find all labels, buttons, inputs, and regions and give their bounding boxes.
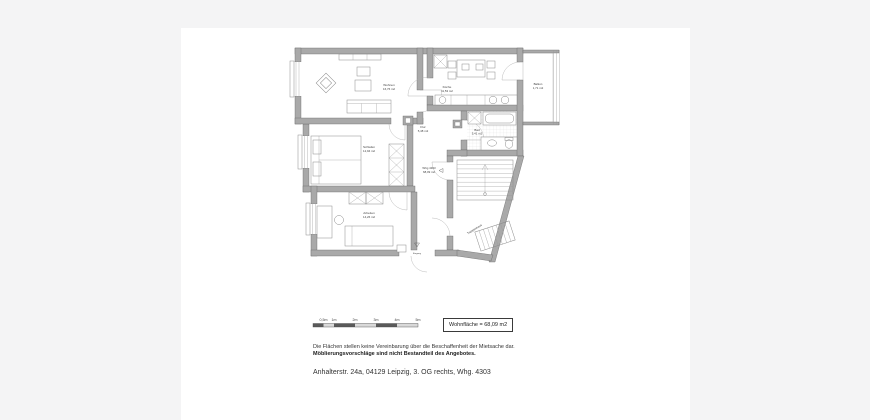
desk (317, 206, 332, 238)
room-label-schlafen: Schlafen 12,94 m2 (363, 145, 375, 153)
living-area-text: Wohnfläche = 68,09 m2 (449, 322, 507, 328)
svg-text:68,09 m2: 68,09 m2 (423, 170, 435, 174)
coffee-table (355, 80, 371, 91)
svg-text:5,41 m2: 5,41 m2 (472, 132, 483, 136)
bath-counter (481, 137, 517, 150)
tv-table (357, 67, 370, 76)
single-bed (345, 226, 393, 246)
staircase-label: Treppenhaus (466, 223, 483, 236)
work-wardrobe (349, 192, 383, 204)
windows (290, 61, 318, 235)
desk-chair (335, 216, 344, 225)
stair-direction-arrow (482, 165, 488, 196)
scale-label: 1m (332, 318, 337, 322)
double-bed (311, 136, 361, 184)
window-wohnen (290, 61, 302, 97)
disclaimer-line-2: Möblierungsvorschläge sind nicht Bestand… (313, 351, 515, 358)
scale-label: 4m (395, 318, 400, 322)
svg-text:1,71 m2: 1,71 m2 (533, 86, 544, 90)
sofa (347, 100, 391, 113)
scale-bar: 0,5m 1m 2m 3m 4m 5m (311, 312, 423, 334)
apartment-label: Whg 4303 68,09 m2 (422, 166, 443, 174)
wardrobe (389, 144, 404, 186)
room-label-wohnen: Wohnen 16,76 m2 (383, 83, 395, 91)
scale-bar-segments (313, 324, 418, 328)
svg-text:5,48 m2: 5,48 m2 (418, 129, 429, 133)
scale-label: 3m (374, 318, 379, 322)
svg-text:16,76 m2: 16,76 m2 (383, 87, 395, 91)
svg-text:Eingang: Eingang (413, 253, 422, 255)
room-label-balkon: Balkon 1,71 m2 (533, 82, 544, 90)
livingroom-furniture (316, 54, 391, 113)
scale-label: 5m (416, 318, 421, 322)
plan-sheet: Wohnen 16,76 m2 Küche 11,53 m2 Balkon 1,… (181, 28, 690, 420)
svg-text:12,94 m2: 12,94 m2 (363, 149, 375, 153)
workroom-furniture (317, 192, 393, 246)
disclaimer: Die Flächen stellen keine Vereinbarung ü… (313, 344, 515, 358)
bathtub (483, 112, 516, 125)
window-arbeiten (306, 203, 318, 235)
washing-machine (468, 112, 481, 124)
disclaimer-line-1: Die Flächen stellen keine Vereinbarung ü… (313, 344, 515, 351)
svg-text:14,26 m2: 14,26 m2 (363, 215, 375, 219)
scale-label: 2m (353, 318, 358, 322)
address-line: Anhalterstr. 24a, 04129 Leipzig, 3. OG r… (313, 369, 491, 376)
room-label-flur: Flur 5,48 m2 (418, 125, 429, 133)
room-label-kueche: Küche 11,53 m2 (441, 85, 453, 93)
dining-table (448, 60, 495, 79)
living-area-box: Wohnfläche = 68,09 m2 (443, 318, 513, 332)
sideboard (339, 54, 381, 60)
svg-text:11,53 m2: 11,53 m2 (441, 89, 453, 93)
window-schlafen (298, 135, 310, 169)
tall-cabinet (434, 55, 447, 68)
armchair (316, 73, 336, 93)
entrance-arrow-icon (439, 169, 443, 173)
room-label-arbeiten: Arbeiten 14,26 m2 (363, 211, 375, 219)
scale-label: 0,5m (320, 318, 328, 322)
floor-plan: Wohnen 16,76 m2 Küche 11,53 m2 Balkon 1,… (289, 34, 581, 276)
kitchen-counter (435, 95, 517, 105)
bedroom-furniture (311, 136, 404, 186)
walls (295, 48, 524, 262)
